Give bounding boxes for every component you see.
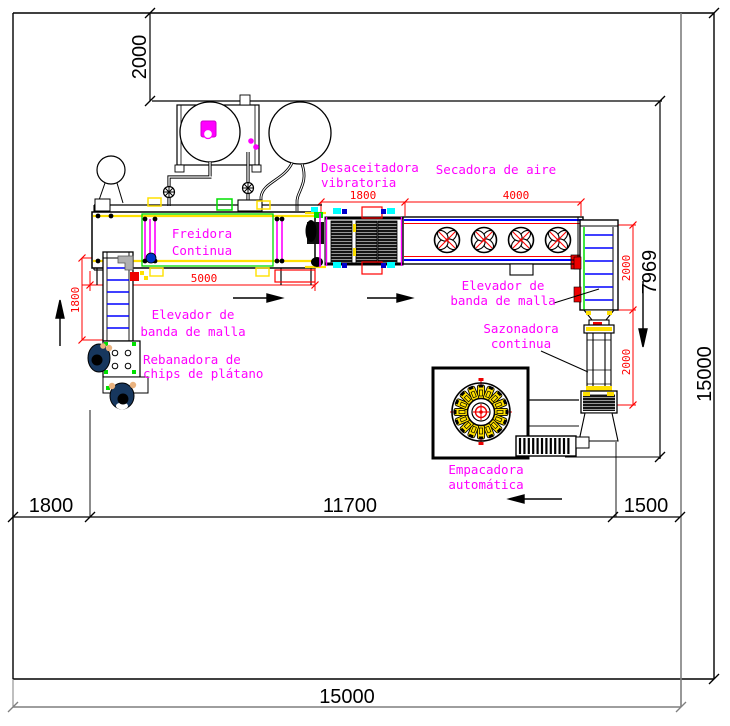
label-slicer-line1: Rebanadora de [143,352,241,367]
dim-elevator2-height: 2000 [620,255,633,282]
fryer-pulley [146,253,156,263]
flow-arrow-left [509,495,562,503]
dim-bottom-right: 1500 [624,495,669,517]
label-elevator2-line2: banda de malla [450,293,555,308]
label-elevator1-line1: Elevador de [152,307,235,322]
oil-tank-2 [269,102,331,164]
elevator2-motor-1 [574,257,581,269]
flow-arrow-right-1 [233,294,282,302]
label-seasoner-line1: Sazonadora [483,321,558,336]
dryer-fan-icon [509,228,534,253]
leader-seasoner [541,351,588,372]
label-elevator2-line1: Elevador de [462,278,545,293]
air-dryer [403,217,583,275]
dim-site-height: 15000 [694,346,716,402]
dim-site-width: 15000 [319,686,375,708]
oil-hoses [261,163,304,211]
dim-seasoner-height: 2000 [620,349,633,376]
discharge-stairs [516,436,589,456]
valve-wheel-1 [164,187,175,198]
flow-arrow-up [56,300,64,346]
valve-wheel-2 [243,183,254,194]
label-deoiler-line1: Desaceitadora [321,160,419,175]
dryer-vent [510,264,533,275]
dim-top-offset: 2000 [129,35,151,80]
mesh-belt-elevator-2 [574,220,618,329]
operator-figure-2 [109,382,136,410]
tank-vent [240,95,250,105]
dryer-fan-icon [435,228,460,253]
dim-elevator1-height: 1800 [69,287,82,314]
packer-infeed-conveyor [527,400,579,426]
dim-bottom-left: 1800 [29,495,74,517]
label-packer-line2: automática [448,477,523,492]
oil-tank-station [97,95,331,211]
label-fryer-line1: Freidora [172,226,232,241]
label-seasoner-line2: continua [491,336,551,351]
dim-bottom-center: 11700 [323,495,377,517]
cad-floor-plan: 2000 7969 15000 1800 11700 1500 15000 18… [0,0,730,726]
label-dryer: Secadora de aire [436,162,556,177]
deoiler-deck-3 [378,221,397,263]
magenta-fitting-1 [248,138,254,144]
label-elevator1-line2: banda de malla [140,324,245,339]
dim-dryer-length: 4000 [503,189,530,202]
dryer-fan-icon [546,228,571,253]
label-deoiler-line2: vibratoria [321,175,396,190]
dim-deoiler-length: 1800 [350,189,377,202]
label-packer-line1: Empacadora [448,462,523,477]
dryer-fan-icon [472,228,497,253]
automatic-packer [433,368,528,458]
flow-arrow-right-2 [367,294,412,302]
tank-motor [201,121,216,139]
deoiler-deck-1 [331,221,352,263]
dim-interior-height: 7969 [639,250,661,295]
small-tank [97,156,125,184]
magenta-fitting-2 [253,144,259,150]
vibrating-deoiler [325,207,403,274]
label-fryer-line2: Continua [172,243,232,258]
continuous-seasoner [579,325,618,441]
elevator1-motor [130,272,139,281]
label-slicer-line2: chips de plátano [143,366,263,381]
dim-fryer-length: 5000 [191,272,218,285]
deoiler-deck-2 [356,221,377,263]
